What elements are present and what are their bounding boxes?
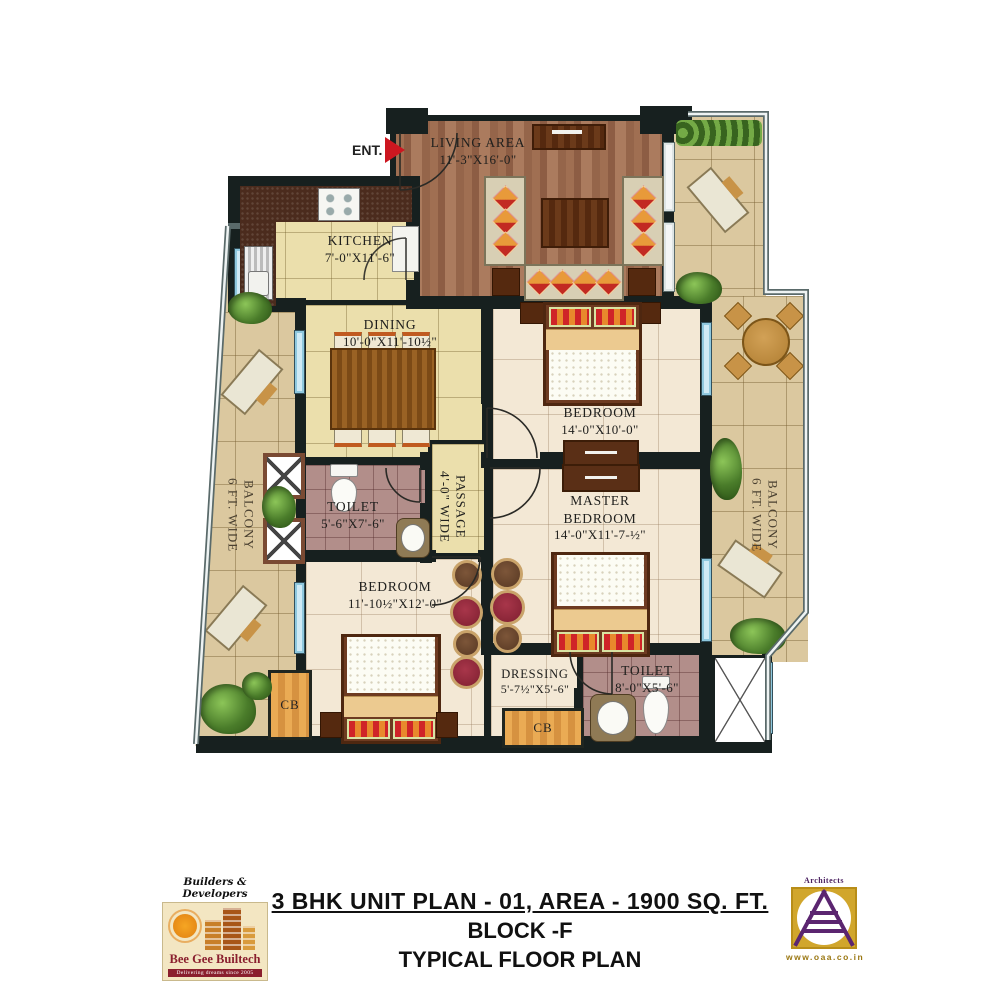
wc-tank [330,464,358,477]
pillow [393,719,436,739]
floor-plan-canvas: CB CB [0,0,1000,989]
cabinet-label: CB [280,697,299,713]
plant [228,292,272,324]
building-icon [223,908,241,950]
cushion [630,231,657,258]
window [701,558,712,642]
builder-logo: Builders & Developers Bee Gee Builtech D… [162,876,268,981]
stool [493,624,522,653]
plant [676,272,722,304]
round-table [742,318,790,366]
cushion [492,231,519,258]
dining-table [330,348,436,430]
living-area-label: LIVING AREA 11'-3"X16'-0" [408,134,548,168]
dressing-label: DRESSING 5'-7½"X5'-6" [490,666,580,698]
plant [242,672,272,700]
bedside-table [320,712,342,738]
passage-label: 4'-0" WIDE PASSAGE [436,452,480,562]
pillows [344,717,438,741]
builder-name: Bee Gee Builtech [165,952,265,967]
bed-sheet [554,609,647,630]
cabinet-cb-left: CB [268,670,312,740]
bedroom2-label: BEDROOM 11'-10½"X12'-0" [305,578,485,612]
bed-sheet [344,696,438,717]
sofa-right [622,176,664,266]
wall-segment [481,296,492,404]
builder-tagline-bottom: Delivering dreams since 2005 [168,969,262,977]
window [294,330,305,394]
side-table [628,268,656,296]
bed-master [551,552,650,657]
pillows [546,305,639,329]
bedside-table [520,302,545,324]
building-icon [243,926,255,950]
sun-icon [173,914,197,938]
plan-type: TYPICAL FLOOR PLAN [270,947,770,973]
architect-logo: Architects www.oaa.co.in [786,876,862,962]
dresser-master [562,464,640,492]
pillow [557,632,599,652]
entry-label: ENT. [352,142,382,158]
title-block: 3 BHK UNIT PLAN - 01, AREA - 1900 SQ. FT… [270,888,770,973]
dining-label: DINING 10'-0"X11'-10½" [310,316,470,350]
pillow [549,307,591,327]
hedge-plants [676,120,762,146]
wall-segment [386,108,428,134]
bed-sheet [546,329,639,350]
coffee-table [541,198,609,248]
dresser-bedroom1 [563,440,639,466]
plant [710,438,742,500]
wall-segment [481,452,492,468]
toilet1-label: TOILET 5'-6"X7'-6" [298,498,408,532]
pillow [602,632,644,652]
stove [318,188,360,221]
stool [491,558,523,590]
wall-segment [420,452,432,470]
builder-logo-art [165,906,265,950]
side-table [492,268,520,296]
mattress [347,637,435,693]
builder-tagline-top: Builders & Developers [162,876,268,900]
sliding-window [663,222,675,292]
window [701,322,712,396]
master-bedroom-label: MASTER BEDROOM 14'-0"X11'-7-½" [545,492,655,544]
pillow [347,719,390,739]
mattress [549,350,636,400]
cabinet-label: CB [533,720,552,736]
cabinet-cb-dressing: CB [502,708,584,748]
toilet2-label: TOILET 8'-0"X5'-6" [592,662,702,696]
building-icon [205,920,221,950]
bedroom1-label: BEDROOM 14'-0"X10'-0" [520,404,680,438]
block-name: BLOCK -F [270,918,770,944]
stool [453,630,481,658]
bed-bedroom1 [543,302,642,406]
basin-bowl [597,701,630,735]
builder-logo-box: Bee Gee Builtech Delivering dreams since… [162,902,268,981]
plant [730,618,786,654]
sliding-window [663,142,675,212]
stool [490,590,525,625]
kitchen-label: KITCHEN 7'-0"X11'-6" [290,232,430,266]
pillow [594,307,636,327]
toilet2-basin [590,694,636,742]
cushion [595,269,622,296]
wc-bowl [643,690,669,734]
architect-logo-box [791,887,857,949]
architect-website: www.oaa.co.in [786,952,862,962]
plan-title: 3 BHK UNIT PLAN - 01, AREA - 1900 SQ. FT… [270,888,770,915]
entry-arrow-icon [385,137,405,163]
balcony-right-label: 6 FT. WIDE BALCONY [748,450,784,580]
mattress [557,555,644,606]
architect-label: Architects [786,876,862,885]
bed-bedroom2 [341,634,441,744]
bedside-table [436,712,458,738]
pillows [554,630,647,654]
window [294,582,305,654]
balcony-left-label: 6 FT. WIDE BALCONY [224,450,260,580]
stool [450,656,483,689]
architect-a-icon [791,887,857,949]
sofa-left [484,176,526,266]
sofa-bottom [524,264,624,301]
plant [262,486,296,528]
tv-console-handle [552,130,582,134]
service-shaft [712,655,768,745]
